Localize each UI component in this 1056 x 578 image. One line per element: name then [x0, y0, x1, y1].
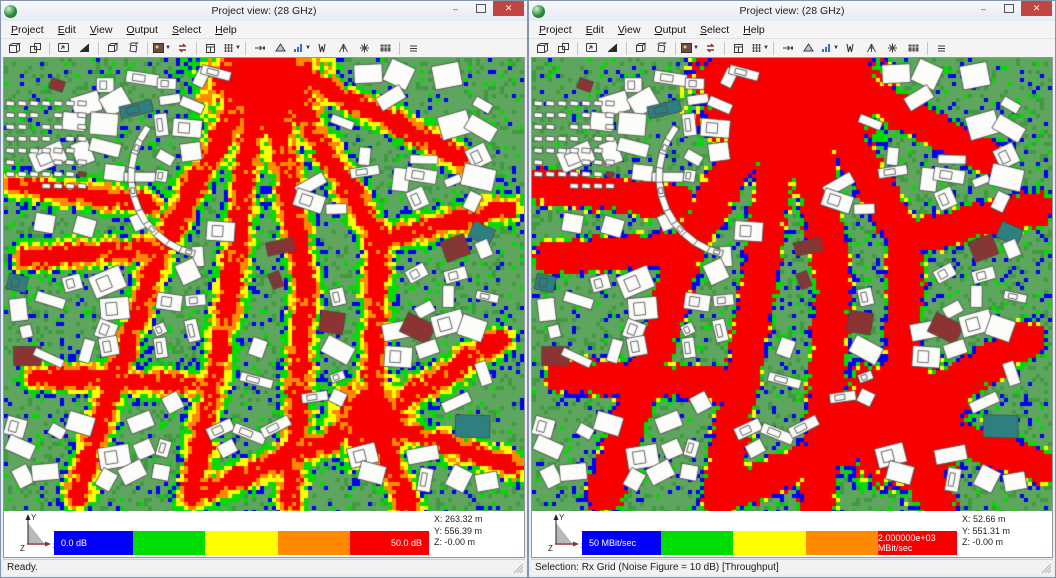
legend-max-label: 50.0 dB [391, 538, 422, 548]
toolbar-separator [49, 42, 50, 55]
toolbar: ▼▼▼ [1, 39, 527, 57]
minimize-button[interactable]: – [971, 1, 996, 16]
menu-view[interactable]: View [83, 23, 120, 37]
menu-edit[interactable]: Edit [579, 23, 611, 37]
legend-blue: 50 MBit/sec [582, 531, 661, 555]
toolbar-separator [399, 42, 400, 55]
menu-output[interactable]: Output [119, 23, 165, 37]
screenshot-icon[interactable] [581, 39, 602, 57]
maximize-button[interactable] [996, 1, 1021, 16]
status-text: Ready. [7, 562, 38, 573]
legend-orange [806, 531, 878, 555]
grid-display-icon[interactable]: ▼ [221, 39, 242, 57]
legend-min-label: 50 MBit/sec [589, 538, 636, 548]
database-icon[interactable] [728, 39, 749, 57]
app-globe-icon [532, 5, 545, 18]
redraw-icon[interactable] [172, 39, 193, 57]
tx-arrow-icon[interactable] [777, 39, 798, 57]
map-viewport: Y x Z 50 MBit/sec 2.000000e+03 MBit/sec … [531, 57, 1053, 558]
menu-output[interactable]: Output [647, 23, 693, 37]
redraw-icon[interactable] [700, 39, 721, 57]
view-3d-icon[interactable] [630, 39, 651, 57]
legend-red: 2.000000e+03 MBit/sec [878, 531, 957, 555]
axis-triad-icon: Y x Z [546, 511, 586, 555]
coord-x: X: 52.66 m [962, 514, 1010, 526]
rx-plane-icon[interactable] [270, 39, 291, 57]
menu-bar: Project Edit View Output Select Help [1, 21, 527, 39]
status-bar: Selection: Rx Grid (Noise Figure = 10 dB… [531, 559, 1053, 575]
toolbar-separator [245, 42, 246, 55]
legend-blue: 0.0 dB [54, 531, 133, 555]
grid-display-icon[interactable]: ▼ [749, 39, 770, 57]
menu-edit[interactable]: Edit [51, 23, 83, 37]
maximize-button[interactable] [468, 1, 493, 16]
legend-orange [278, 531, 350, 555]
coord-z: Z: -0.00 m [962, 537, 1010, 549]
new-view-icon[interactable] [4, 39, 25, 57]
menu-bar: Project Edit View Output Select Help [529, 21, 1055, 39]
color-legend: 50 MBit/sec 2.000000e+03 MBit/sec [582, 531, 957, 555]
project-view-window-right: Project view: (28 GHz) – ✕ Project Edit … [528, 0, 1056, 578]
menu-project[interactable]: Project [532, 23, 579, 37]
minimize-button[interactable]: – [443, 1, 468, 16]
resize-grip[interactable] [513, 563, 524, 574]
close-button[interactable]: ✕ [1021, 1, 1052, 16]
antenna-pattern-icon[interactable] [840, 39, 861, 57]
antenna-pattern-icon[interactable] [312, 39, 333, 57]
compute-rays-icon[interactable] [882, 39, 903, 57]
title-bar[interactable]: Project view: (28 GHz) – ✕ [1, 1, 527, 21]
rotate-3d-icon[interactable] [123, 39, 144, 57]
result-bars-icon[interactable]: ▼ [291, 39, 312, 57]
maximize-icon [476, 4, 486, 13]
coord-x: X: 263.32 m [434, 514, 483, 526]
cursor-coordinates: X: 52.66 m Y: 551.31 m Z: -0.00 m [962, 514, 1010, 549]
title-bar[interactable]: Project view: (28 GHz) – ✕ [529, 1, 1055, 21]
toolbar-separator [147, 42, 148, 55]
database-icon[interactable] [200, 39, 221, 57]
axis-triad-icon: Y x Z [18, 511, 58, 555]
menu-select[interactable]: Select [693, 23, 736, 37]
resize-grip[interactable] [1041, 563, 1052, 574]
menu-help[interactable]: Help [736, 23, 772, 37]
project-view-window-left: Project view: (28 GHz) – ✕ Project Edit … [0, 0, 528, 578]
display-fill-icon[interactable] [602, 39, 623, 57]
status-text: Selection: Rx Grid (Noise Figure = 10 dB… [535, 562, 779, 573]
result-bars-icon[interactable]: ▼ [819, 39, 840, 57]
display-fill-icon[interactable] [74, 39, 95, 57]
legend-min-label: 0.0 dB [61, 538, 87, 548]
close-button[interactable]: ✕ [493, 1, 524, 16]
image-settings-icon[interactable]: ▼ [679, 39, 700, 57]
menu-select[interactable]: Select [165, 23, 208, 37]
legend-red: 50.0 dB [350, 531, 429, 555]
svg-text:Y: Y [559, 513, 565, 522]
status-bar: Ready. [3, 559, 525, 575]
legend-green [661, 531, 733, 555]
app-globe-icon [4, 5, 17, 18]
svg-text:Z: Z [548, 544, 553, 553]
legend-panel: Y x Z 0.0 dB 50.0 dB X: 263.32 m Y: 556.… [4, 511, 524, 557]
maximize-icon [1004, 4, 1014, 13]
legend-green [133, 531, 205, 555]
svg-text:Y: Y [31, 513, 37, 522]
toolbar-separator [98, 42, 99, 55]
antenna-site-icon[interactable] [333, 39, 354, 57]
coord-y: Y: 556.39 m [434, 526, 483, 538]
map-canvas[interactable] [532, 58, 1052, 512]
duplicate-view-icon[interactable] [553, 39, 574, 57]
coord-y: Y: 551.31 m [962, 526, 1010, 538]
view-3d-icon[interactable] [102, 39, 123, 57]
data-table-icon[interactable] [903, 39, 924, 57]
data-table-icon[interactable] [375, 39, 396, 57]
screenshot-icon[interactable] [53, 39, 74, 57]
desktop: Project view: (28 GHz) – ✕ Project Edit … [0, 0, 1056, 578]
menu-project[interactable]: Project [4, 23, 51, 37]
legend-max-label: 2.000000e+03 MBit/sec [878, 533, 950, 553]
rotate-3d-icon[interactable] [651, 39, 672, 57]
toolbar-separator [927, 42, 928, 55]
rx-plane-icon[interactable] [798, 39, 819, 57]
compute-rays-icon[interactable] [354, 39, 375, 57]
new-view-icon[interactable] [532, 39, 553, 57]
list-icon[interactable] [931, 39, 952, 57]
legend-panel: Y x Z 50 MBit/sec 2.000000e+03 MBit/sec … [532, 511, 1052, 557]
duplicate-view-icon[interactable] [25, 39, 46, 57]
toolbar-separator [577, 42, 578, 55]
menu-help[interactable]: Help [208, 23, 244, 37]
menu-view[interactable]: View [611, 23, 648, 37]
toolbar-separator [773, 42, 774, 55]
map-canvas[interactable] [4, 58, 524, 512]
coord-z: Z: -0.00 m [434, 537, 483, 549]
legend-yellow [205, 531, 277, 555]
toolbar-separator [724, 42, 725, 55]
antenna-site-icon[interactable] [861, 39, 882, 57]
legend-yellow [733, 531, 805, 555]
toolbar-separator [626, 42, 627, 55]
svg-text:Z: Z [20, 544, 25, 553]
color-legend: 0.0 dB 50.0 dB [54, 531, 429, 555]
cursor-coordinates: X: 263.32 m Y: 556.39 m Z: -0.00 m [434, 514, 483, 549]
map-viewport: Y x Z 0.0 dB 50.0 dB X: 263.32 m Y: 556.… [3, 57, 525, 558]
image-settings-icon[interactable]: ▼ [151, 39, 172, 57]
toolbar-separator [196, 42, 197, 55]
toolbar-separator [675, 42, 676, 55]
tx-arrow-icon[interactable] [249, 39, 270, 57]
list-icon[interactable] [403, 39, 424, 57]
toolbar: ▼▼▼ [529, 39, 1055, 57]
